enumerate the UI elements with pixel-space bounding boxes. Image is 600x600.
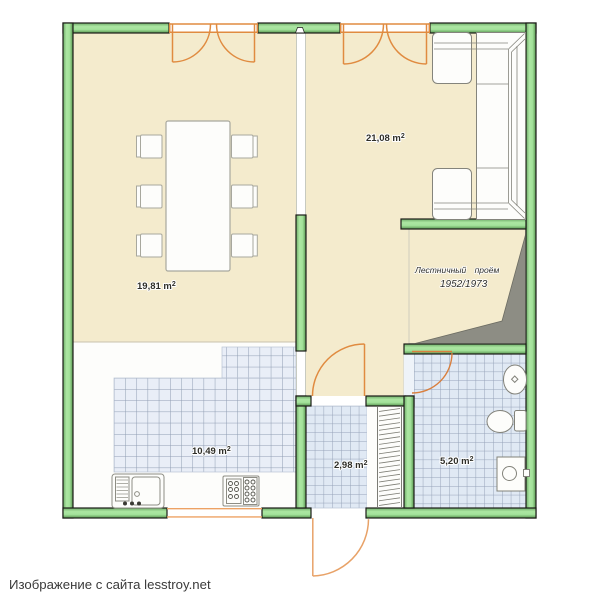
svg-text:10,49 m2: 10,49 m2	[192, 446, 231, 457]
svg-text:Изображение с сайта lesstroy.n: Изображение с сайта lesstroy.net	[9, 577, 211, 592]
svg-text:21,08 m2: 21,08 m2	[366, 133, 405, 144]
svg-text:2,98 m2: 2,98 m2	[334, 460, 368, 471]
svg-text:1952/1973: 1952/1973	[440, 279, 488, 290]
svg-text:5,20 m2: 5,20 m2	[440, 456, 474, 467]
svg-text:Лестничный проём: Лестничный проём	[414, 265, 499, 275]
svg-text:19,81 m2: 19,81 m2	[137, 281, 176, 292]
